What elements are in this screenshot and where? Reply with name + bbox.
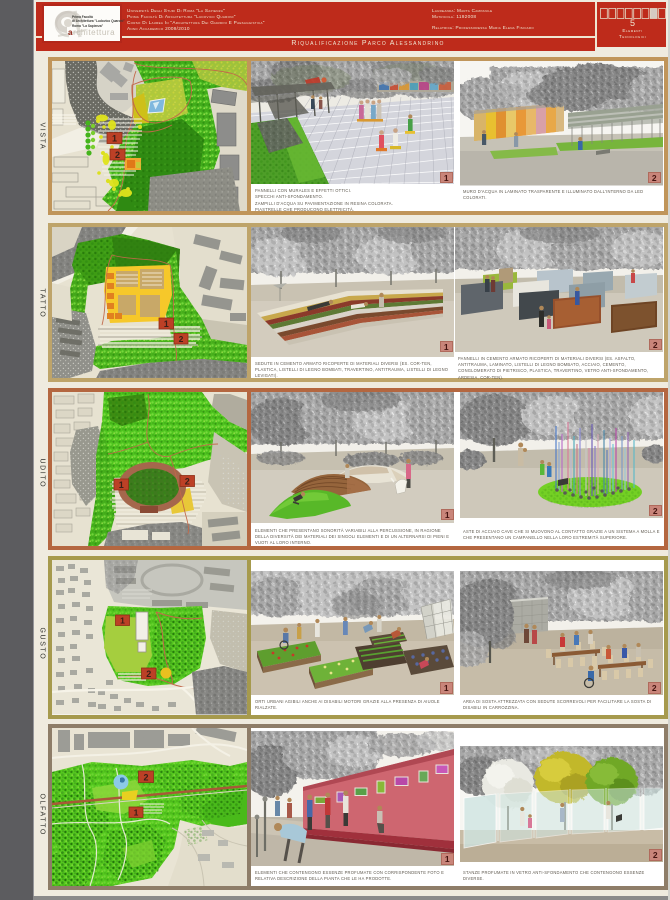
svg-text:1: 1 <box>164 319 169 329</box>
svg-text:2: 2 <box>115 150 120 160</box>
svg-text:2: 2 <box>179 334 184 344</box>
svg-text:1: 1 <box>119 480 124 490</box>
svg-text:2: 2 <box>143 772 148 782</box>
svg-text:2: 2 <box>185 476 190 486</box>
svg-text:1: 1 <box>112 134 117 144</box>
svg-text:1: 1 <box>134 808 139 818</box>
svg-text:2: 2 <box>146 669 151 679</box>
svg-text:1: 1 <box>120 616 125 626</box>
